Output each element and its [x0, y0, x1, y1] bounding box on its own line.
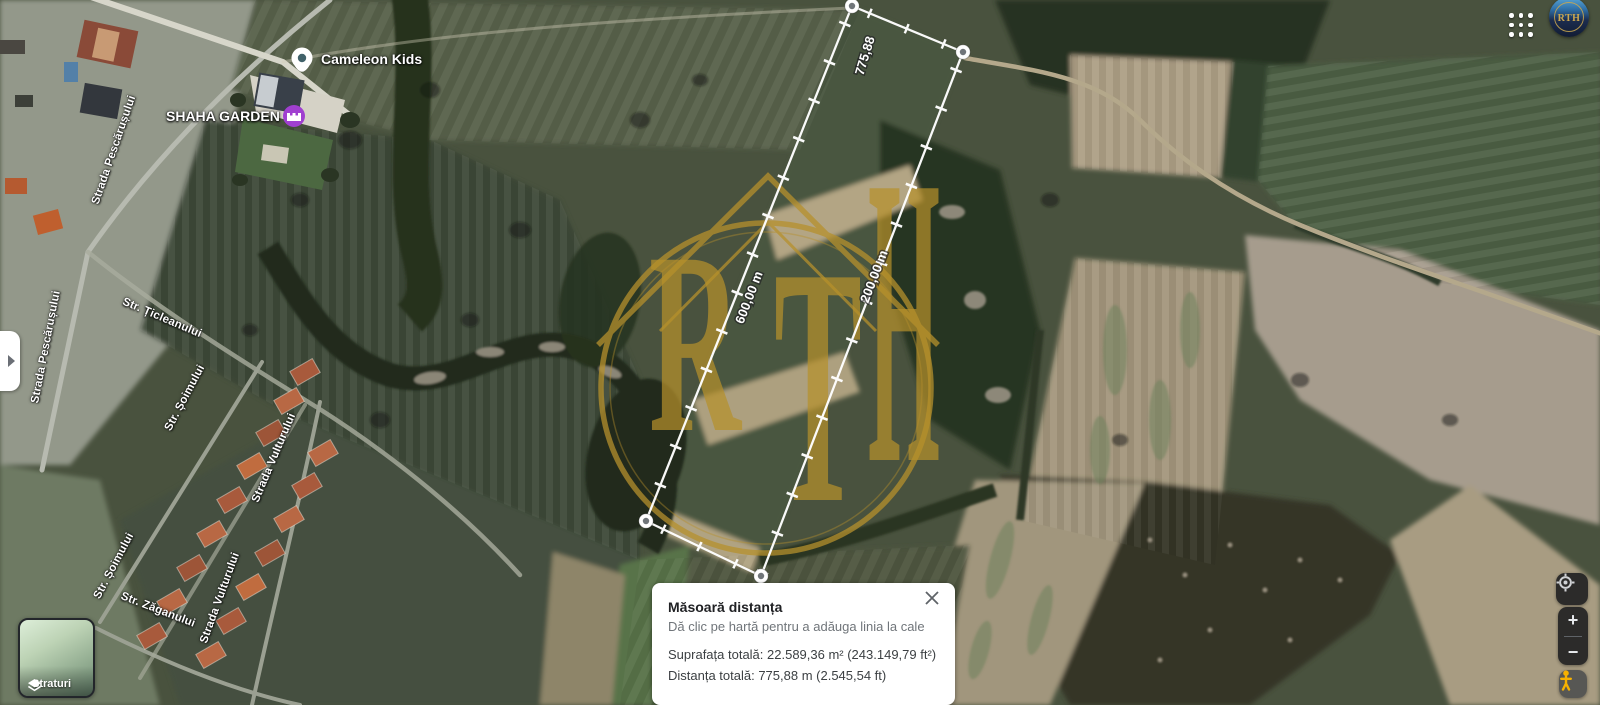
total-area-value: Suprafața totală: 22.589,36 m² (243.149,…: [668, 644, 939, 665]
street-view-pegman-button[interactable]: [1559, 670, 1587, 698]
poi-label-shaha-garden[interactable]: SHAHA GARDEN: [166, 108, 280, 124]
my-location-button[interactable]: [1556, 573, 1588, 605]
pegman-icon: [1559, 670, 1573, 691]
total-distance-value: Distanța totală: 775,88 m (2.545,54 ft): [668, 665, 939, 686]
zoom-divider: [1564, 636, 1582, 637]
expand-side-panel-button[interactable]: [0, 331, 20, 391]
layers-toggle[interactable]: Straturi: [18, 618, 95, 698]
zoom-control: + −: [1558, 607, 1588, 665]
my-location-icon: [1556, 573, 1575, 592]
google-apps-grid-button[interactable]: [1507, 11, 1535, 39]
panel-subtitle: Dă clic pe hartă pentru a adăuga linia l…: [668, 617, 939, 637]
avatar-rth-monogram: RTH: [1549, 13, 1589, 24]
panel-title: Măsoară distanța: [668, 597, 939, 617]
measure-distance-panel: Măsoară distanța Dă clic pe hartă pentru…: [652, 583, 955, 705]
zoom-out-button[interactable]: −: [1558, 642, 1588, 662]
poi-label-cameleon-kids[interactable]: Cameleon Kids: [321, 51, 422, 67]
google-maps-measure-screen: Strada Pescărușului Str. Țicleanului Str…: [0, 0, 1600, 705]
chevron-right-icon: [8, 355, 15, 367]
zoom-in-button[interactable]: +: [1558, 610, 1588, 630]
close-icon[interactable]: [925, 591, 945, 611]
